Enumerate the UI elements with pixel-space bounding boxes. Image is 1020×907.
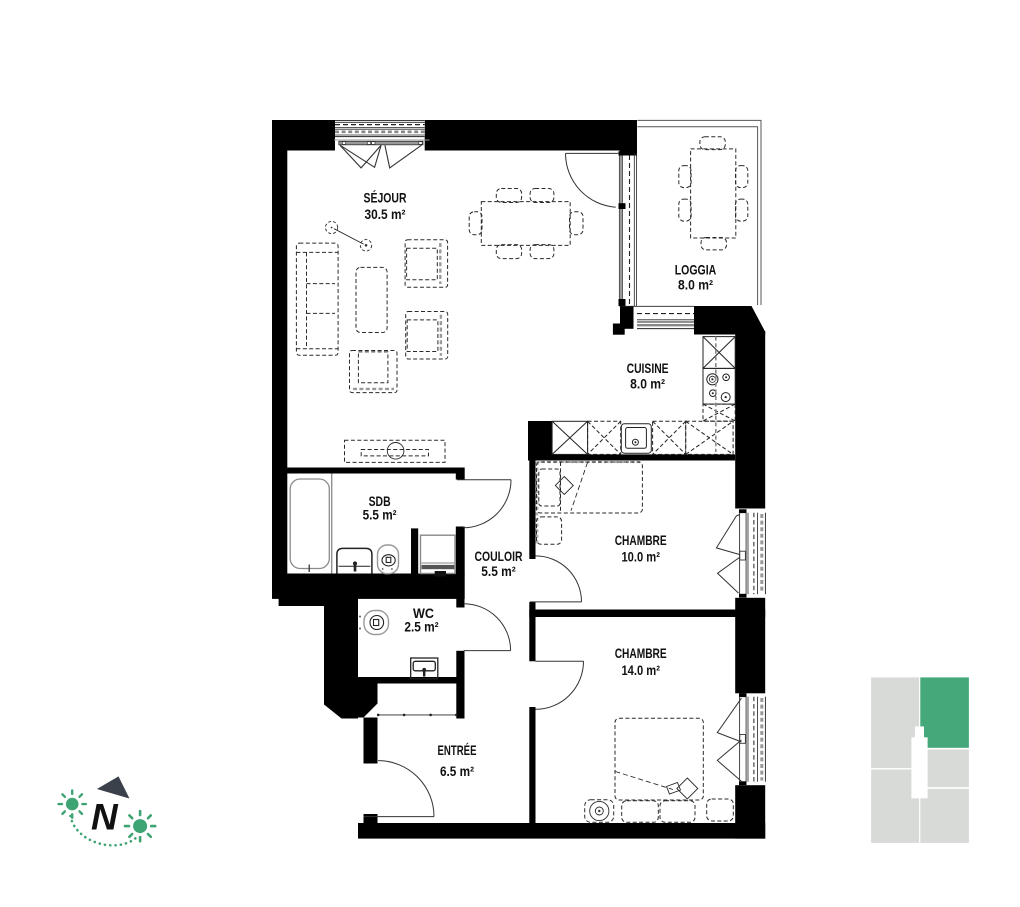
- svg-text:14.0 m²: 14.0 m²: [621, 662, 660, 678]
- svg-text:5.5 m²: 5.5 m²: [363, 507, 397, 523]
- svg-text:2.5 m²: 2.5 m²: [404, 619, 439, 635]
- svg-text:CHAMBRE: CHAMBRE: [615, 645, 667, 661]
- svg-text:CUISINE: CUISINE: [627, 360, 669, 376]
- svg-text:COULOIR: COULOIR: [475, 548, 523, 564]
- svg-text:30.5 m²: 30.5 m²: [365, 206, 406, 222]
- svg-text:CHAMBRE: CHAMBRE: [615, 532, 667, 548]
- svg-text:6.5 m²: 6.5 m²: [440, 763, 474, 779]
- svg-text:8.0 m²: 8.0 m²: [678, 277, 713, 293]
- svg-text:8.0 m²: 8.0 m²: [630, 376, 665, 392]
- svg-text:ENTRÉE: ENTRÉE: [438, 742, 477, 758]
- svg-text:SÉJOUR: SÉJOUR: [364, 190, 407, 206]
- svg-text:LOGGIA: LOGGIA: [675, 262, 717, 278]
- svg-text:10.0 m²: 10.0 m²: [621, 549, 660, 565]
- svg-text:N: N: [91, 797, 119, 838]
- svg-text:5.5 m²: 5.5 m²: [481, 563, 516, 579]
